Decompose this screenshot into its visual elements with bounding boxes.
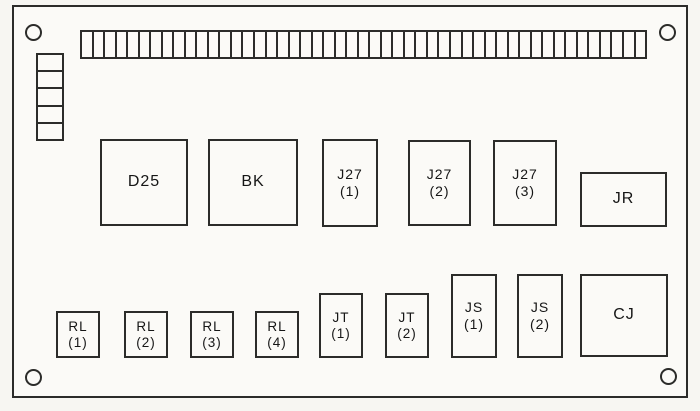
terminal-strip-tooth <box>541 32 553 57</box>
terminal-strip-tooth <box>403 32 415 57</box>
terminal-strip-tooth <box>195 32 207 57</box>
terminal-strip-tooth <box>610 32 622 57</box>
component-label: RL <box>202 319 221 335</box>
terminal-strip <box>80 30 647 59</box>
component-j27-3: J27 (3) <box>493 140 557 226</box>
terminal-strip-tooth <box>126 32 138 57</box>
mounting-hole-bottom-left <box>25 369 42 386</box>
component-label: (1) <box>340 183 360 200</box>
terminal-strip-tooth <box>299 32 311 57</box>
terminal-strip-tooth <box>553 32 565 57</box>
component-jr: JR <box>580 172 667 227</box>
component-label: (1) <box>464 316 484 333</box>
terminal-strip-tooth <box>414 32 426 57</box>
terminal-strip-tooth <box>634 32 646 57</box>
diagram-page: D25 BK J27 (1) J27 (2) J27 (3) JR RL (1)… <box>0 0 700 411</box>
component-label: (4) <box>267 335 287 351</box>
terminal-strip-tooth <box>82 32 92 57</box>
component-label: JS <box>531 299 549 316</box>
component-rl-2: RL (2) <box>124 311 168 358</box>
terminal-strip-tooth <box>311 32 323 57</box>
component-label: (1) <box>68 335 88 351</box>
component-label: (1) <box>331 326 351 342</box>
terminal-strip-tooth <box>322 32 334 57</box>
component-jt-2: JT (2) <box>385 293 429 358</box>
edge-connector <box>36 53 64 141</box>
component-label: D25 <box>128 173 160 192</box>
terminal-strip-tooth <box>357 32 369 57</box>
terminal-strip-tooth <box>599 32 611 57</box>
component-j27-1: J27 (1) <box>322 139 378 227</box>
terminal-strip-tooth <box>184 32 196 57</box>
terminal-strip-tooth <box>495 32 507 57</box>
component-d25: D25 <box>100 139 188 226</box>
component-label: (3) <box>515 183 535 200</box>
terminal-strip-tooth <box>622 32 634 57</box>
edge-connector-cell <box>38 87 62 104</box>
component-label: JR <box>613 190 635 209</box>
terminal-strip-tooth <box>564 32 576 57</box>
component-label: BK <box>241 173 264 192</box>
component-label: J27 <box>512 166 538 183</box>
component-label: JT <box>333 310 350 326</box>
terminal-strip-tooth <box>161 32 173 57</box>
mounting-hole-top-left <box>25 24 42 41</box>
component-label: RL <box>68 319 87 335</box>
component-label: (2) <box>397 326 417 342</box>
component-label: RL <box>267 319 286 335</box>
terminal-strip-tooth <box>368 32 380 57</box>
component-jt-1: JT (1) <box>319 293 363 358</box>
component-label: JT <box>399 310 416 326</box>
component-label: J27 <box>427 166 453 183</box>
terminal-strip-tooth <box>265 32 277 57</box>
terminal-strip-tooth <box>230 32 242 57</box>
terminal-strip-tooth <box>518 32 530 57</box>
terminal-strip-tooth <box>115 32 127 57</box>
component-label: CJ <box>613 306 635 325</box>
terminal-strip-tooth <box>288 32 300 57</box>
terminal-strip-tooth <box>276 32 288 57</box>
component-bk: BK <box>208 139 298 226</box>
edge-connector-cell <box>38 105 62 122</box>
terminal-strip-tooth <box>253 32 265 57</box>
terminal-strip-tooth <box>449 32 461 57</box>
terminal-strip-tooth <box>507 32 519 57</box>
terminal-strip-tooth <box>587 32 599 57</box>
component-j27-2: J27 (2) <box>408 140 471 226</box>
component-label: (2) <box>429 183 449 200</box>
terminal-strip-tooth <box>576 32 588 57</box>
mounting-hole-top-right <box>659 24 676 41</box>
terminal-strip-tooth <box>334 32 346 57</box>
terminal-strip-tooth <box>207 32 219 57</box>
component-js-2: JS (2) <box>517 274 563 358</box>
terminal-strip-tooth <box>461 32 473 57</box>
mounting-hole-bottom-right <box>660 368 677 385</box>
component-label: (2) <box>136 335 156 351</box>
terminal-strip-tooth <box>426 32 438 57</box>
terminal-strip-tooth <box>391 32 403 57</box>
terminal-strip-tooth <box>530 32 542 57</box>
component-rl-4: RL (4) <box>255 311 299 358</box>
component-label: (2) <box>530 316 550 333</box>
component-cj: CJ <box>580 274 668 357</box>
edge-connector-cell <box>38 70 62 87</box>
terminal-strip-tooth <box>149 32 161 57</box>
terminal-strip-tooth <box>92 32 104 57</box>
edge-connector-cell <box>38 55 62 70</box>
terminal-strip-tooth <box>103 32 115 57</box>
terminal-strip-tooth <box>241 32 253 57</box>
component-label: J27 <box>337 166 363 183</box>
terminal-strip-tooth <box>472 32 484 57</box>
component-rl-1: RL (1) <box>56 311 100 358</box>
component-label: RL <box>136 319 155 335</box>
terminal-strip-tooth <box>380 32 392 57</box>
component-rl-3: RL (3) <box>190 311 234 358</box>
component-label: (3) <box>202 335 222 351</box>
terminal-strip-tooth <box>172 32 184 57</box>
component-js-1: JS (1) <box>451 274 497 358</box>
terminal-strip-tooth <box>437 32 449 57</box>
terminal-strip-tooth <box>484 32 496 57</box>
terminal-strip-tooth <box>138 32 150 57</box>
terminal-strip-tooth <box>218 32 230 57</box>
terminal-strip-tooth <box>345 32 357 57</box>
edge-connector-cell <box>38 122 62 139</box>
component-label: JS <box>465 299 483 316</box>
